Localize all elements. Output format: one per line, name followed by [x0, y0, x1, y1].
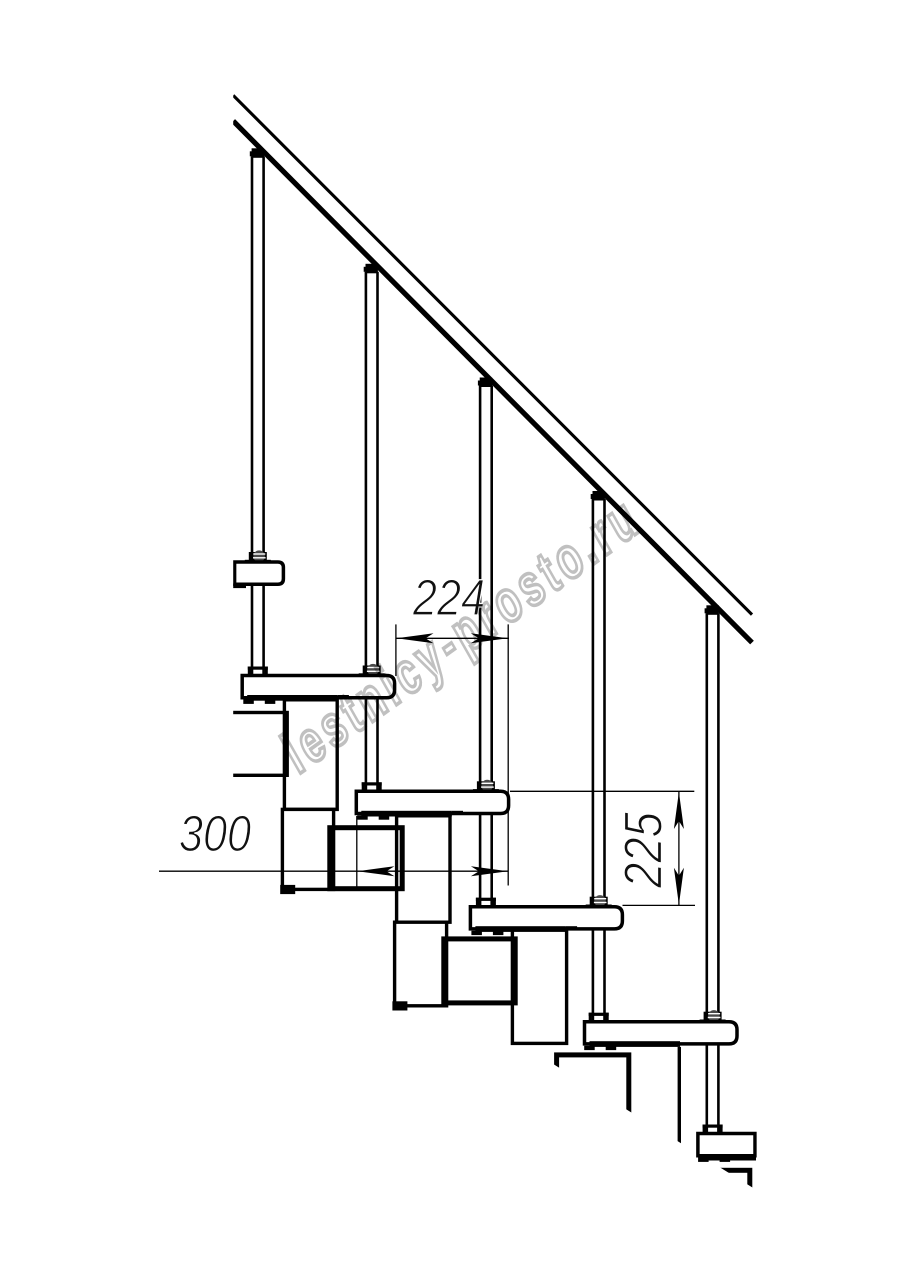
svg-text:225: 225 — [613, 812, 674, 889]
svg-text:300: 300 — [179, 806, 251, 863]
